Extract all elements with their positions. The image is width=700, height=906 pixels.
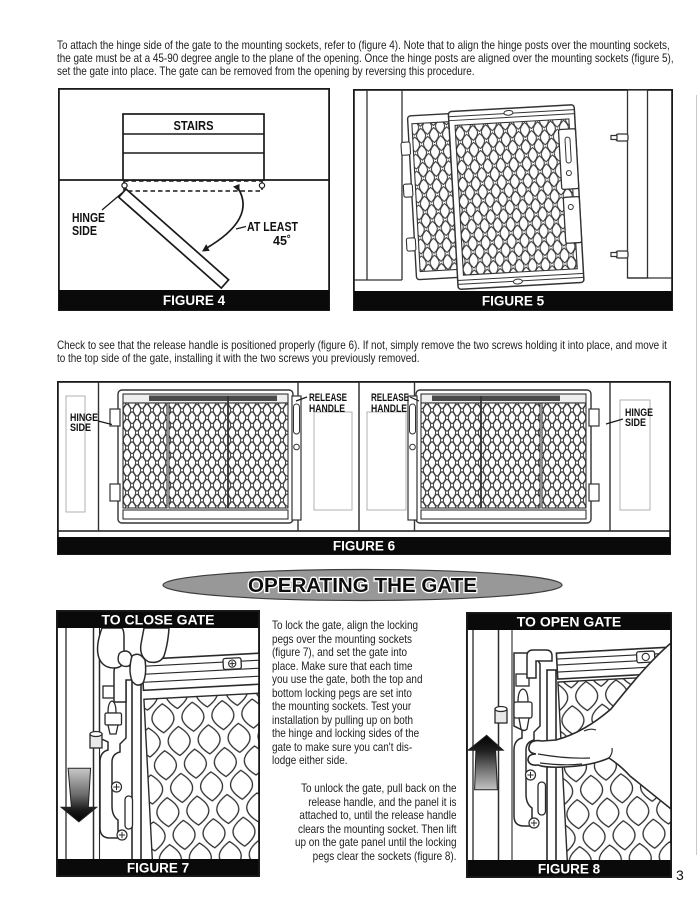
svg-text:FIGURE 7: FIGURE 7 [127,861,189,876]
svg-text:FIGURE 4: FIGURE 4 [163,293,226,308]
svg-text:TO OPEN GATE: TO OPEN GATE [517,614,622,630]
svg-text:HANDLE: HANDLE [309,403,345,415]
svg-text:HANDLE: HANDLE [371,403,407,415]
svg-text:SIDE: SIDE [625,417,646,429]
svg-text:45˚: 45˚ [273,234,291,248]
svg-text:OPERATING THE GATE: OPERATING THE GATE [248,575,477,597]
svg-text:HINGE: HINGE [72,211,105,225]
svg-text:FIGURE 5: FIGURE 5 [482,294,545,309]
svg-text:FIGURE 6: FIGURE 6 [333,539,396,554]
svg-text:SIDE: SIDE [72,224,97,238]
svg-text:STAIRS: STAIRS [174,119,214,133]
svg-text:AT LEAST: AT LEAST [247,220,298,234]
svg-text:SIDE: SIDE [70,422,91,434]
svg-text:FIGURE 8: FIGURE 8 [538,862,601,877]
svg-text:TO CLOSE GATE: TO CLOSE GATE [101,612,214,628]
